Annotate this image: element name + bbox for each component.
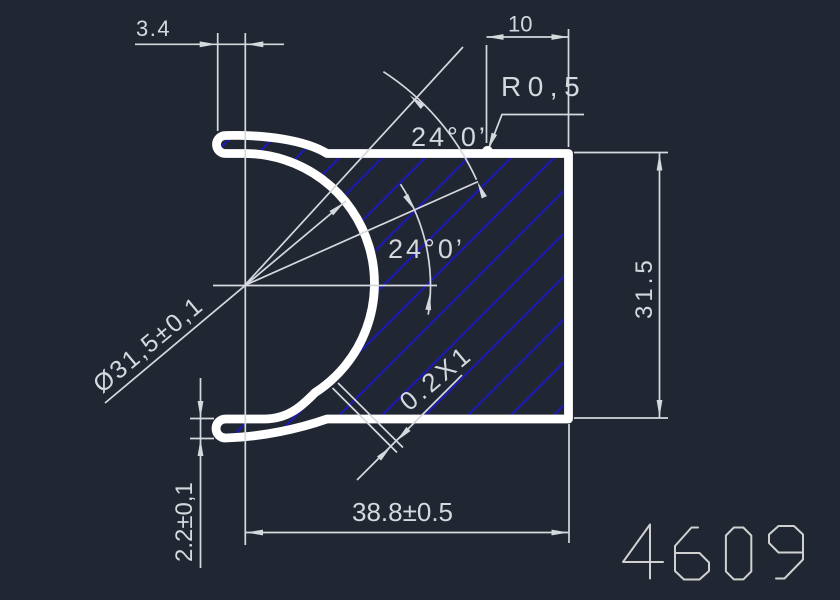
svg-text:R0,5: R0,5	[501, 71, 586, 102]
svg-text:24°0’: 24°0’	[388, 234, 465, 264]
svg-text:3.4: 3.4	[136, 16, 171, 41]
svg-text:24°0’: 24°0’	[411, 122, 488, 152]
svg-text:31.5: 31.5	[631, 256, 658, 319]
svg-text:10: 10	[508, 12, 532, 37]
svg-text:2.2±0,1: 2.2±0,1	[171, 482, 198, 562]
svg-text:38.8±0.5: 38.8±0.5	[352, 497, 453, 527]
